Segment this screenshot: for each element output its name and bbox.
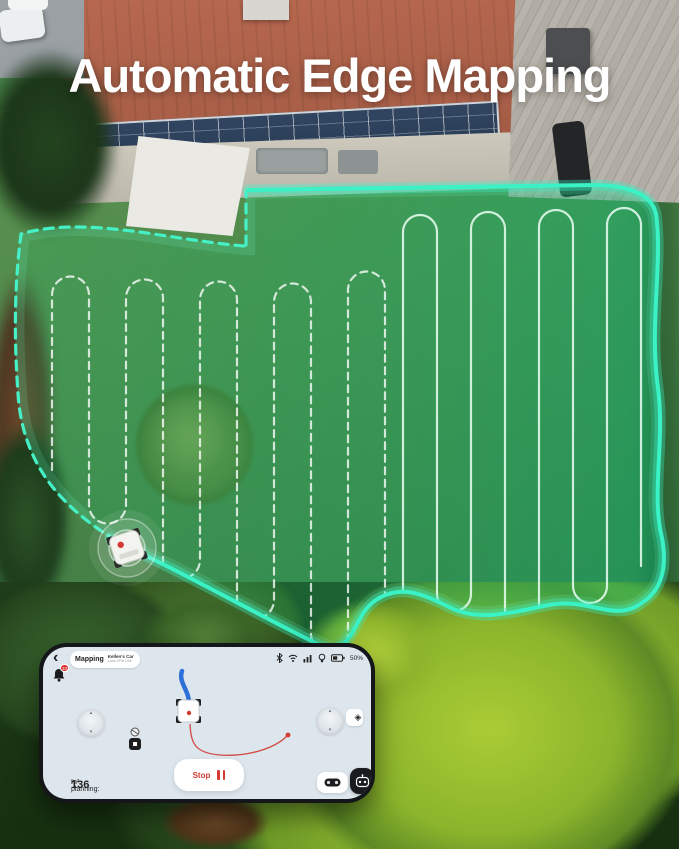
stop-button[interactable]: Stop <box>174 759 244 791</box>
pause-icon <box>217 770 225 780</box>
robot-face-icon <box>355 774 370 788</box>
path-endpoint <box>286 733 291 738</box>
joystick-down-icon: ▾ <box>329 728 332 733</box>
stop-label: Stop <box>193 771 211 780</box>
joystick-up-icon: ▴ <box>329 709 332 714</box>
status-bar: 50% <box>276 653 363 663</box>
joystick-down-icon: ▾ <box>90 730 93 735</box>
tab-mapping: Mapping <box>75 656 104 663</box>
left-joystick[interactable]: ▴ ▾ <box>77 709 105 737</box>
manual-control-button[interactable] <box>317 772 348 793</box>
device-id: Luba-VFM D46 <box>108 660 134 664</box>
page-title: Automatic Edge Mapping <box>0 48 679 103</box>
wifi-icon <box>288 654 298 662</box>
dock-marker[interactable] <box>129 728 141 750</box>
robot-mode-button[interactable] <box>350 768 371 794</box>
battery-icon <box>331 654 345 662</box>
app-screen: ‹ Mapping Kellen's Car Luba-VFM D46 <box>43 647 371 799</box>
robot-mower <box>89 510 165 586</box>
joystick-up-icon: ▴ <box>90 711 93 716</box>
marketing-image: Automatic Edge Mapping <box>0 0 679 849</box>
bluetooth-icon <box>276 653 283 663</box>
robot-planned-path <box>190 724 287 755</box>
gamepad-icon <box>324 777 341 788</box>
battery-percent: 50% <box>350 655 363 662</box>
app-robot-icon[interactable] <box>176 699 201 723</box>
notification-badge: 10 <box>60 664 69 672</box>
right-joystick[interactable]: ▴ ▾ <box>316 707 344 735</box>
phone-mockup: ‹ Mapping Kellen's Car Luba-VFM D46 <box>39 643 375 803</box>
device-selector[interactable]: Mapping Kellen's Car Luba-VFM D46 <box>70 651 140 668</box>
recenter-button[interactable]: ◈ <box>346 709 363 726</box>
recenter-icon: ◈ <box>355 709 362 726</box>
robot-traveled-path <box>181 671 189 703</box>
back-button[interactable]: ‹ <box>53 649 58 667</box>
signal-icon <box>303 654 313 663</box>
bulb-icon <box>318 653 326 663</box>
